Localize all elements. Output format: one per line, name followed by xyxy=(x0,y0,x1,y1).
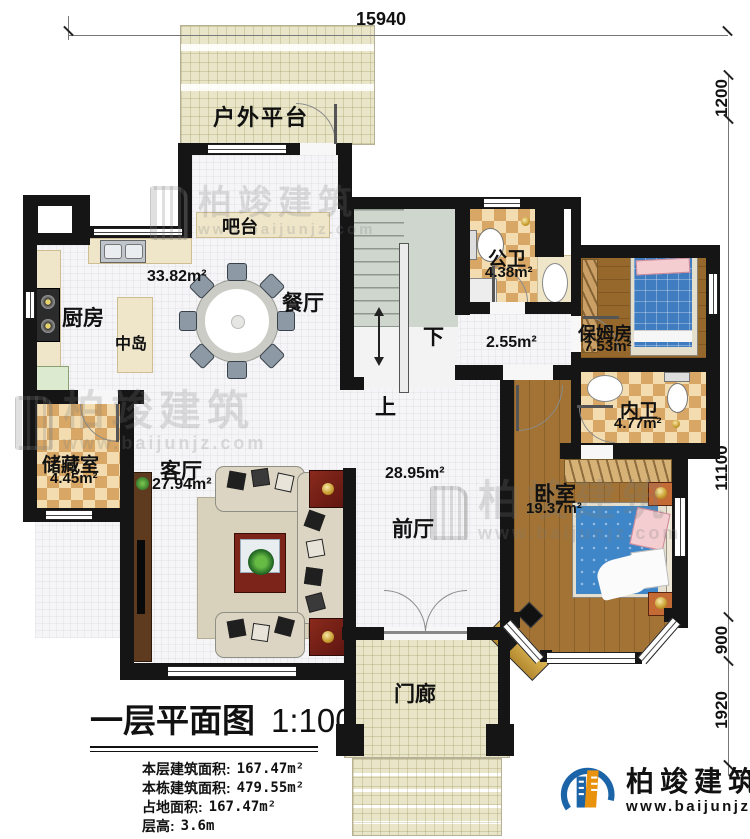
wall-stairs-left xyxy=(340,197,354,387)
window-publicbath xyxy=(484,198,520,208)
stair-arrow-up xyxy=(374,307,384,316)
dim-line-right xyxy=(728,75,729,775)
door-leaf-innerbath xyxy=(577,405,613,408)
label-kitchen: 厨房 xyxy=(62,302,104,332)
inner-bath-sink xyxy=(587,375,623,402)
wall-publicbath-left xyxy=(455,197,470,315)
wall-living-foyer-divider xyxy=(343,468,356,640)
sofa-pillow xyxy=(251,623,270,642)
door-leaf-platform xyxy=(334,104,337,144)
label-hall-area: 2.55m² xyxy=(486,334,537,352)
wall-stairs-foot xyxy=(340,377,364,390)
porch-steps xyxy=(352,758,502,836)
porch-column xyxy=(486,724,514,756)
sink-basin xyxy=(104,244,122,259)
wall-porch-right xyxy=(498,636,510,728)
stove xyxy=(36,288,60,342)
dim-line-top xyxy=(68,35,728,36)
window-storage xyxy=(46,510,92,520)
wall-left-outer xyxy=(23,195,37,522)
plan-title: 一层平面图 xyxy=(90,694,255,742)
sofa-pillow xyxy=(274,472,294,492)
stat-label: 本层建筑面积: xyxy=(142,760,231,779)
kitchen-sink xyxy=(100,240,146,263)
wall-barnook-left xyxy=(178,143,192,238)
sofa-pillow xyxy=(304,567,323,586)
door-opening-bedroom-hall xyxy=(503,365,553,380)
label-storage-area: 4.45m² xyxy=(50,470,98,487)
label-platform: 户外平台 xyxy=(213,100,309,132)
label-bedroom-area: 19.37m² xyxy=(526,500,582,517)
door-leaf-storage xyxy=(116,404,119,442)
stat-row: 本栋建筑面积: 479.55m² xyxy=(142,779,354,798)
dim-right-value: 900 xyxy=(712,623,732,657)
dim-right-value: 1920 xyxy=(712,688,732,732)
table-plant xyxy=(248,549,274,575)
wall-nanny-bath-divider xyxy=(571,358,720,372)
nanny-bed-blanket xyxy=(634,330,692,342)
bedroom-wardrobe xyxy=(564,459,672,483)
label-dining: 餐厅 xyxy=(282,287,324,317)
stat-value: 167.47m² xyxy=(237,760,304,779)
door-opening-storage xyxy=(78,390,118,404)
stair-arrow-down xyxy=(374,357,384,366)
label-nanny-area: 7.53m² xyxy=(584,338,632,355)
dining-chair xyxy=(179,311,197,331)
wall-nanny-top xyxy=(571,245,720,258)
door-leaf-entry xyxy=(425,631,467,634)
plant xyxy=(136,477,149,490)
toilet-bowl xyxy=(667,383,688,413)
stat-value: 479.55m² xyxy=(237,779,304,798)
label-bar: 吧台 xyxy=(222,213,258,239)
end-table-ornament xyxy=(322,483,334,495)
stat-label: 本栋建筑面积: xyxy=(142,779,231,798)
toilet-tank xyxy=(664,372,690,382)
stat-label: 占地面积: xyxy=(142,798,203,817)
stair-handrail xyxy=(399,243,409,393)
stair-direction-line xyxy=(378,315,380,359)
label-publicbath-area: 4.38m² xyxy=(485,264,533,281)
label-living-area: 27.94m² xyxy=(152,476,212,494)
label-stairs-down: 下 xyxy=(423,321,444,351)
stat-value: 167.47m² xyxy=(209,798,276,817)
label-stairs-up: 上 xyxy=(375,391,396,421)
dim-right-value: 1200 xyxy=(712,78,732,118)
column-void xyxy=(38,206,72,233)
tv xyxy=(137,540,145,614)
burner xyxy=(41,319,55,333)
brand-name: 柏竣建筑 xyxy=(626,767,750,798)
brand-logo: 柏竣建筑 www.baijunjz.com xyxy=(556,760,750,822)
bath-sink xyxy=(542,263,568,303)
door-leaf-nanny xyxy=(583,316,619,319)
dining-chair xyxy=(227,263,247,281)
label-island: 中岛 xyxy=(115,330,147,354)
brand-logo-icon xyxy=(556,760,618,822)
door-leaf-entry xyxy=(384,631,426,634)
sofa-pillow xyxy=(251,468,270,487)
door-opening-platform xyxy=(300,143,336,155)
title-block: 一层平面图 1:100 本层建筑面积: 167.47m² 本栋建筑面积: 479… xyxy=(90,694,354,836)
door-leaf-bedroom xyxy=(516,385,519,431)
wall-publicbath-right xyxy=(535,197,564,257)
door-opening-innerbath xyxy=(581,445,613,459)
nightstand-lamp xyxy=(655,487,667,499)
porch-column xyxy=(336,724,364,756)
sofa-pillow xyxy=(227,619,247,639)
label-foyer-area: 28.95m² xyxy=(385,465,445,483)
title-underline-2 xyxy=(90,751,318,752)
stat-row: 占地面积: 167.47m² xyxy=(142,798,354,817)
label-foyer: 前厅 xyxy=(392,513,434,543)
window-living-south xyxy=(168,666,296,677)
dim-top-value: 15940 xyxy=(356,9,406,30)
window-bay-bottom xyxy=(547,652,635,664)
nanny-bed-pillow xyxy=(636,258,691,276)
sink-basin xyxy=(125,244,143,259)
window-bedroom-right xyxy=(674,498,686,556)
window-barnook xyxy=(208,144,286,154)
wall-storage-right xyxy=(120,390,134,680)
window-kitchen-left xyxy=(25,292,35,318)
stat-value: 3.6m xyxy=(181,817,215,836)
label-dining-area: 33.82m² xyxy=(147,268,207,286)
stat-row: 层高: 3.6m xyxy=(142,817,354,836)
wall-bedroom-left xyxy=(500,380,514,627)
window-nanny xyxy=(708,274,718,314)
label-porch: 门廊 xyxy=(394,678,436,708)
dining-chair xyxy=(227,361,247,379)
end-table-ornament xyxy=(322,631,334,643)
brand-url: www.baijunjz.com xyxy=(626,798,750,815)
label-innerbath-area: 4.77m² xyxy=(614,415,662,432)
title-underline xyxy=(90,746,318,748)
burner xyxy=(41,295,55,309)
sofa-pillow xyxy=(227,471,247,491)
stat-label: 层高: xyxy=(142,817,175,836)
floor-drain xyxy=(672,420,680,428)
floor-plan: 柏竣建筑 www.baijunjz.com 柏竣建筑 www.baijunjz.… xyxy=(0,0,750,839)
door-opening-publicbath xyxy=(490,302,525,314)
dim-ext-topleft xyxy=(68,16,69,40)
stat-row: 本层建筑面积: 167.47m² xyxy=(142,760,354,779)
bar-counter xyxy=(196,212,330,238)
faucet xyxy=(521,217,530,226)
window-kitchen-top xyxy=(94,228,182,236)
platform-step-line xyxy=(181,44,374,51)
wall-porch-left xyxy=(344,636,356,728)
dining-table-center xyxy=(231,315,245,329)
brand-text: 柏竣建筑 www.baijunjz.com xyxy=(626,767,750,815)
platform-step-line xyxy=(181,84,374,91)
sofa-pillow xyxy=(306,539,326,559)
